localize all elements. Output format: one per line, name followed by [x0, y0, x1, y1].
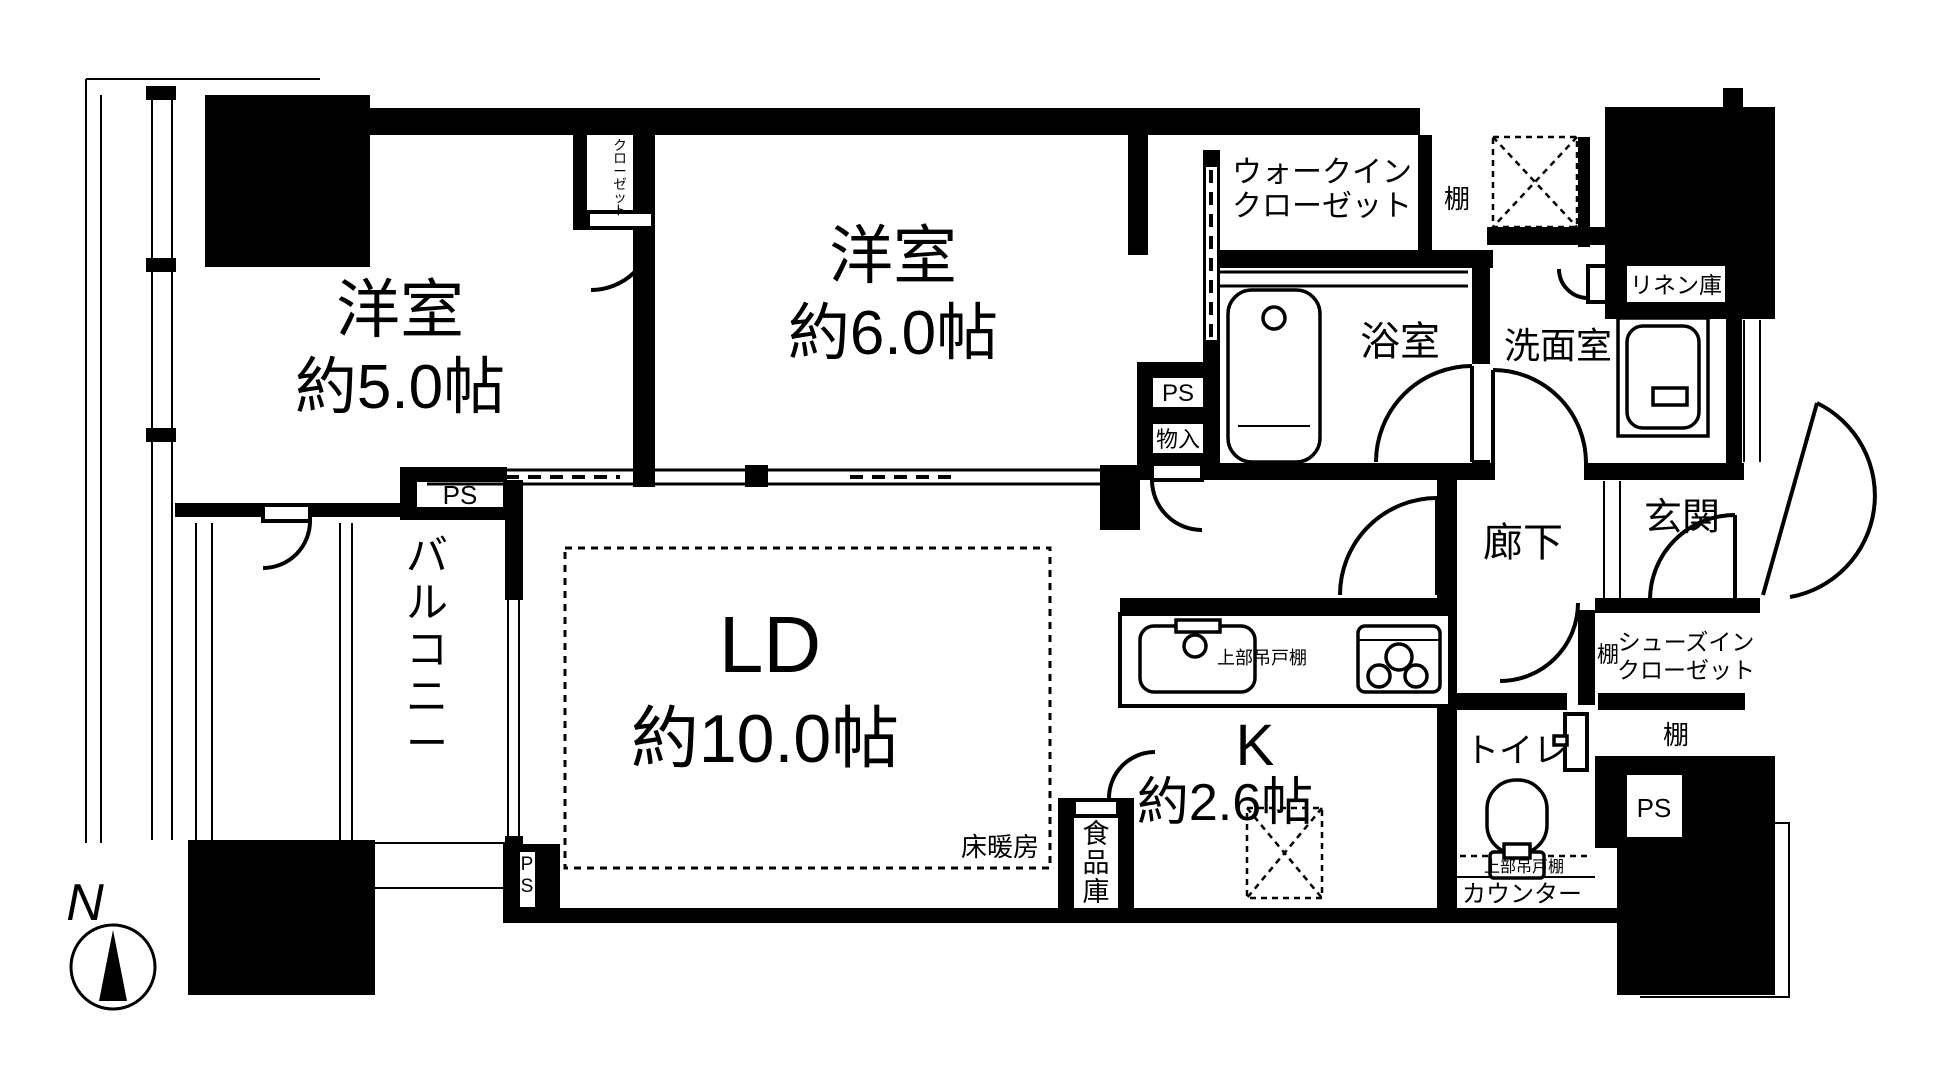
kitchen-name: K	[1236, 713, 1275, 778]
counter-label: カウンター	[1462, 881, 1582, 908]
washroom-label: 洗面室	[1504, 325, 1612, 366]
compass-needle-icon	[99, 930, 127, 1001]
kitchen-upper-cabinet-label: 上部吊戸棚	[1217, 648, 1307, 668]
bath-label: 浴室	[1360, 320, 1440, 364]
storage-x-box-top	[1493, 137, 1577, 227]
sic-label-line2: クローゼット	[1617, 657, 1755, 683]
kitchen-size: 約2.6帖	[1137, 774, 1313, 832]
floor-heating-label: 床暖房	[961, 832, 1039, 862]
shelf-bottom-label: 棚	[1663, 720, 1689, 750]
toilet-upper-cabinet-label: 上部吊戸棚	[1484, 858, 1564, 876]
toilet-label: トイレ	[1465, 732, 1567, 770]
ps-top-left-label: PS	[443, 480, 478, 510]
entrance-label: 玄関	[1644, 497, 1720, 539]
bedroom2-name: 洋室	[829, 220, 957, 292]
compass: N	[66, 874, 155, 1009]
kitchen-hallway-door	[1152, 464, 1202, 530]
washing-machine-icon	[1618, 318, 1708, 436]
stove-icon	[1358, 626, 1440, 692]
ps-bottom-right-label: PS	[1637, 793, 1672, 823]
sic-label-line1: シューズイン	[1618, 629, 1755, 655]
bedroom2-size: 約6.0帖	[788, 299, 998, 368]
compass-north-label: N	[66, 874, 104, 932]
pantry-label: 食品庫	[1083, 819, 1110, 907]
entrance-door	[1763, 403, 1875, 597]
closet-label: クローゼット	[613, 138, 627, 218]
linen-door	[1559, 266, 1607, 302]
wic-label-line1: ウォークイン	[1232, 156, 1412, 189]
ld-size: 約10.0帖	[631, 701, 899, 777]
bedroom1-size: 約5.0帖	[295, 353, 505, 422]
hallway-label: 廊下	[1483, 521, 1563, 565]
washroom-door	[1493, 370, 1586, 463]
floorplan-page: N 洋室 約5.0帖 洋室 約6.0帖 クローゼット ウォークイン クローゼット…	[0, 0, 1959, 1077]
linen-label: リネン庫	[1630, 272, 1722, 298]
wic-label-line2: クローゼット	[1232, 190, 1412, 223]
floorplan-drawing: N 洋室 約5.0帖 洋室 約6.0帖 クローゼット ウォークイン クローゼット…	[0, 0, 1959, 1077]
bathtub-icon	[1228, 290, 1320, 462]
ps-balcony-label: PS	[521, 854, 534, 897]
hallway-ld-door	[1340, 498, 1437, 595]
storage-mid-label: 物入	[1156, 427, 1200, 452]
shelf-top-label: 棚	[1444, 184, 1470, 214]
bedroom1-balcony-door	[263, 505, 310, 568]
bedroom1-name: 洋室	[336, 274, 464, 346]
ld-name: LD	[719, 600, 821, 689]
balcony-label: バルコニー	[406, 532, 448, 767]
ps-mid-label: PS	[1162, 380, 1194, 407]
bath-door	[1376, 366, 1472, 462]
sic-shelf-label: 棚	[1597, 642, 1619, 667]
